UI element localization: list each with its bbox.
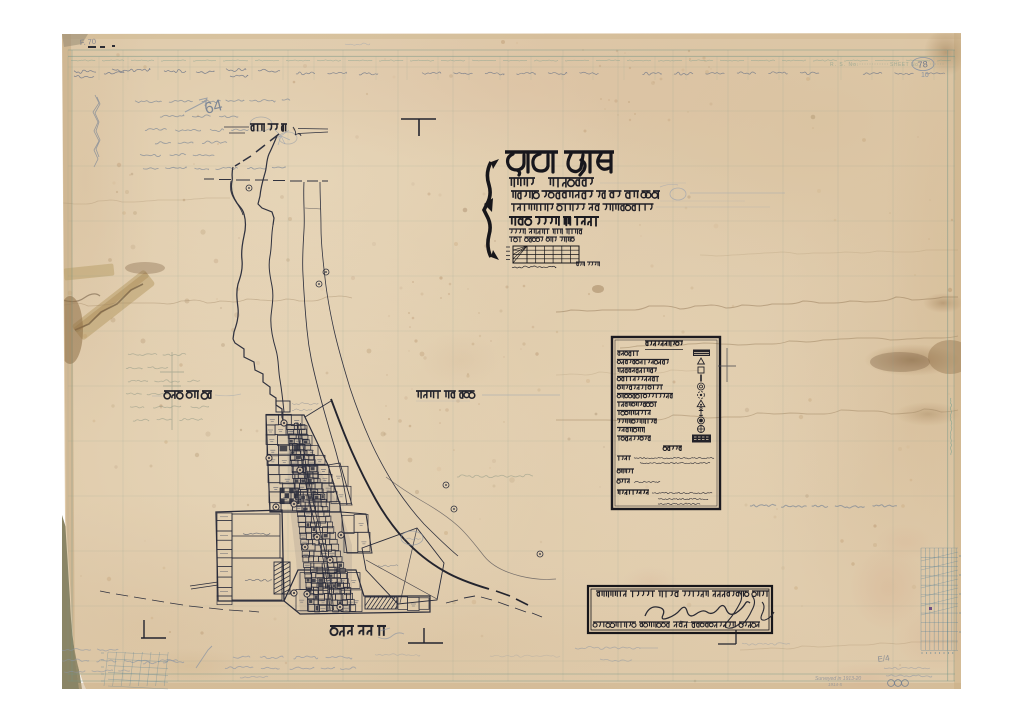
svg-text:F. 70: F. 70: [80, 37, 97, 47]
svg-text:1914-5: 1914-5: [828, 682, 843, 687]
svg-text:SHEET No.: SHEET No.: [890, 62, 920, 68]
svg-text:10: 10: [921, 72, 929, 79]
svg-text:78: 78: [917, 59, 928, 70]
svg-text:E/4: E/4: [877, 653, 891, 664]
svg-text:R. S. No.: R. S. No.: [830, 62, 859, 68]
